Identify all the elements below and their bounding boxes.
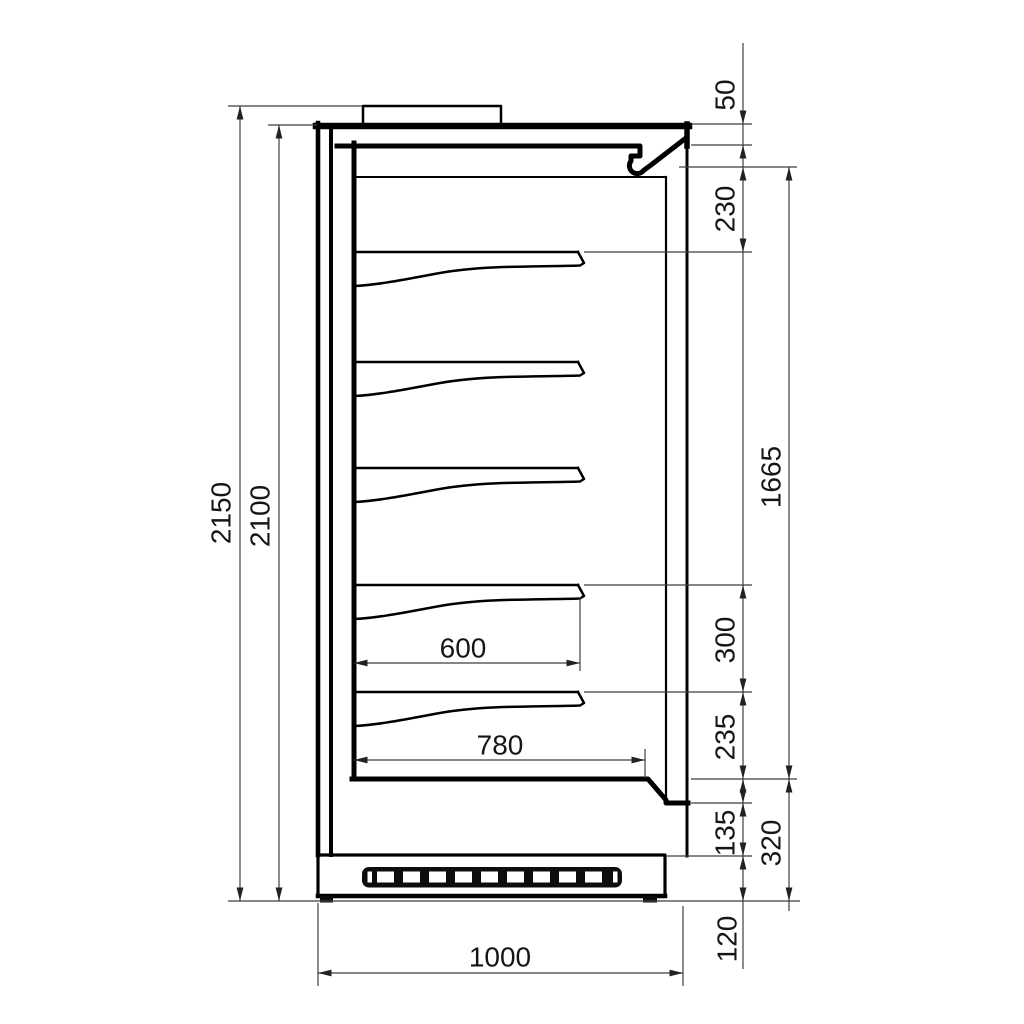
dim-label-front-panel: 135: [710, 810, 741, 857]
dim-label-plinth: 120: [712, 916, 743, 963]
dim-label-shelf-depth: 600: [440, 633, 487, 664]
drawing-page: 2150 2100 50 230 1665 300 235 135 320 12…: [0, 0, 1024, 1024]
dim-label-body-height: 2100: [245, 485, 276, 547]
dim-label-overall-height: 2150: [206, 482, 237, 544]
dim-label-canopy-front: 50: [710, 79, 741, 110]
dim-label-lowest-shelf-clearance: 235: [710, 714, 741, 761]
dim-label-base-section: 320: [756, 820, 787, 867]
dim-label-shelf-pitch: 300: [710, 617, 741, 664]
technical-drawing: 2150 2100 50 230 1665 300 235 135 320 12…: [0, 0, 1024, 1024]
dim-label-display-opening: 1665: [756, 446, 787, 508]
dim-label-overall-depth: 1000: [469, 942, 531, 973]
ventilation-grille: [362, 867, 622, 888]
dim-label-top-section: 230: [710, 186, 741, 233]
dim-label-well-depth: 780: [477, 730, 524, 761]
